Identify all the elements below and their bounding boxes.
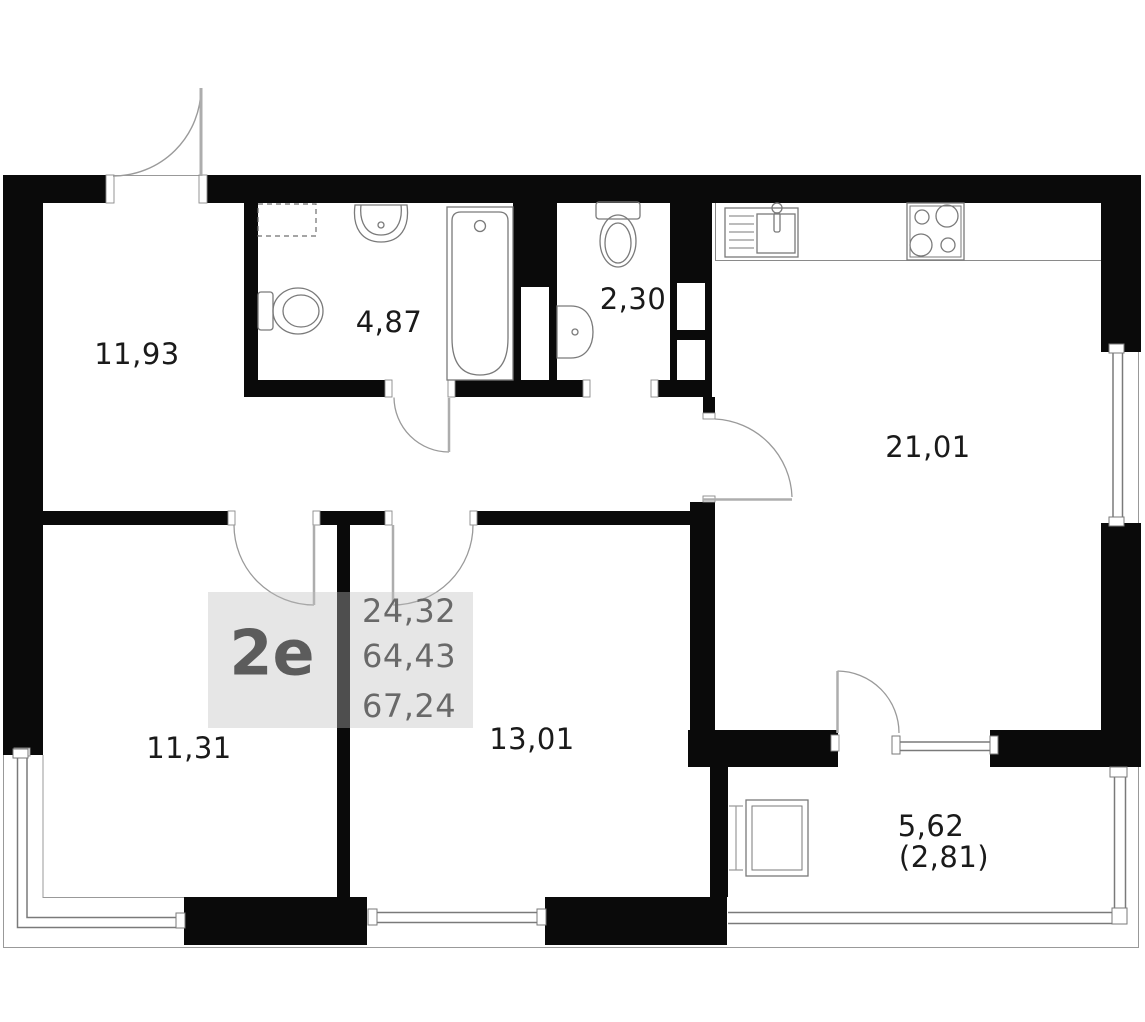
bathroom-door: [394, 398, 449, 453]
bathtub: [447, 207, 513, 380]
wc-toilet: [596, 202, 640, 267]
room-label-bedroom-left: 11,31: [146, 731, 232, 765]
wc-sink: [557, 306, 593, 358]
bathroom-toilet: [258, 288, 323, 334]
walls: [3, 175, 1141, 945]
room-label-kitchen-living: 21,01: [885, 430, 971, 464]
total-area-value: 67,24: [362, 687, 456, 725]
unit-type-label: 2e: [229, 617, 314, 690]
room-label-balcony-reduced: (2,81): [899, 840, 989, 874]
interior-edge-lines: [43, 755, 184, 898]
room-label-bedroom-middle: 13,01: [489, 722, 575, 756]
living-area-value: 24,32: [362, 592, 456, 630]
room-label-hallway: 11,93: [94, 337, 180, 371]
balcony-window: [892, 736, 998, 754]
floor-plan: 2e 24,32 64,43 67,24 11,93 4,87 2,30 21,…: [0, 0, 1145, 1022]
bathroom-sink: [354, 205, 407, 242]
corner-window-left: [13, 749, 185, 928]
room-label-wc: 2,30: [600, 282, 667, 316]
room-label-balcony: 5,62: [898, 809, 965, 843]
plan-outline: [4, 176, 1139, 948]
balcony-cabinet: [746, 800, 808, 876]
stove: [907, 203, 964, 260]
room-label-bathroom: 4,87: [356, 305, 423, 339]
window-bedroom-middle: [368, 909, 546, 925]
balcony-radiator-mark: [729, 806, 743, 870]
kitchen-sink: [725, 203, 798, 257]
kitchen-door: [703, 419, 792, 500]
apartment-area-value: 64,43: [362, 637, 456, 675]
balcony-door: [838, 671, 900, 733]
window-kitchen: [1109, 344, 1124, 526]
washing-machine: [258, 204, 316, 236]
entry-door: [113, 88, 201, 176]
